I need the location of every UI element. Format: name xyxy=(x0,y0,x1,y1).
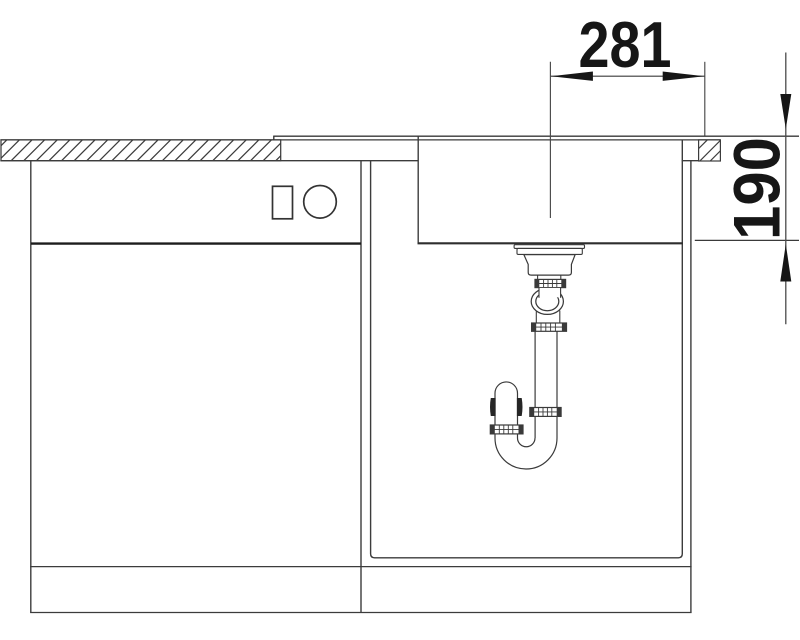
svg-text:190: 190 xyxy=(720,137,794,240)
svg-text:281: 281 xyxy=(579,8,672,81)
